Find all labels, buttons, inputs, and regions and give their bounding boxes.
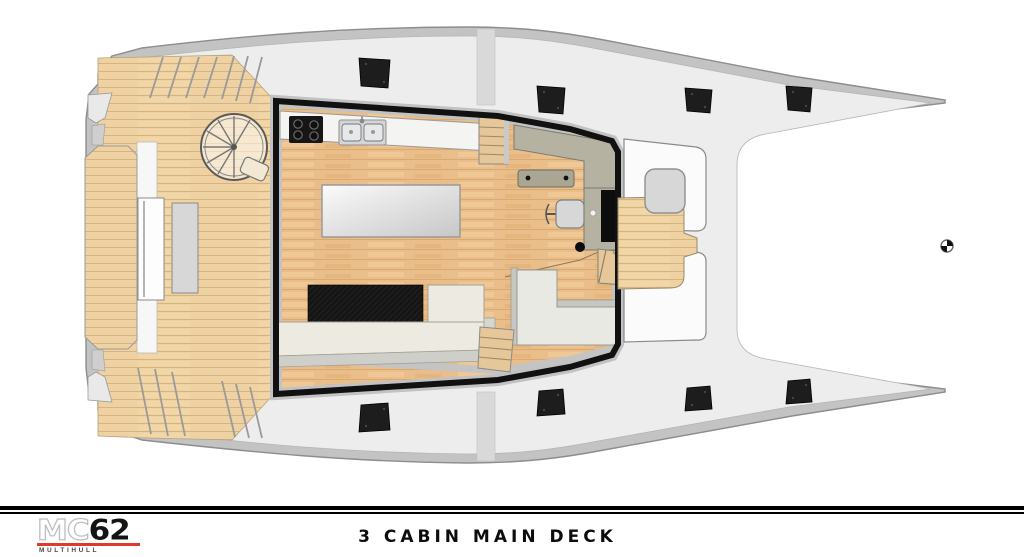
salon-rug: [308, 285, 423, 322]
aft-cockpit-group: [85, 55, 272, 440]
crossbeam-strip-top: [477, 29, 495, 105]
stern-step-top-shade: [92, 124, 105, 145]
aft-platform: [85, 146, 137, 349]
stairs-starboard: [479, 117, 509, 164]
tv-panel: [601, 190, 617, 242]
hatch-icon: [685, 386, 712, 411]
nav-button: [590, 210, 596, 216]
hatch-icon: [359, 403, 390, 432]
double-sink: [339, 116, 386, 145]
hatch-icon: [786, 86, 812, 112]
yacht-floor-plan-page: MC62 MULTIHULL 3 CABIN MAIN DECK: [0, 0, 1024, 557]
floor-plan-drawing: [0, 0, 1024, 557]
footer-rule-thick: [0, 506, 1024, 510]
footer-rule-thin: [0, 512, 1024, 514]
cockpit-bench: [172, 203, 198, 293]
salon-island-table: [322, 185, 460, 237]
stern-step-bottom-shade: [92, 350, 105, 371]
stairs-port: [478, 327, 514, 372]
crossbeam-strip-bottom: [477, 392, 495, 461]
hatch-icon: [359, 58, 390, 88]
cockpit-table: [138, 198, 164, 300]
hatch-icon: [786, 379, 812, 404]
forward-cockpit-group: [618, 139, 706, 342]
cooktop: [289, 116, 323, 143]
brand-logo-subtitle: MULTIHULL: [39, 547, 99, 554]
hatch-icon: [537, 86, 565, 114]
forward-seat-cushion: [645, 169, 685, 213]
deck-plan-title: 3 CABIN MAIN DECK: [0, 527, 975, 547]
salon-cabin-group: [276, 101, 652, 394]
hatch-icon: [685, 88, 712, 113]
benchmark-icon: [941, 240, 953, 252]
mast-post-dot: [575, 242, 585, 252]
hatch-icon: [537, 389, 565, 416]
